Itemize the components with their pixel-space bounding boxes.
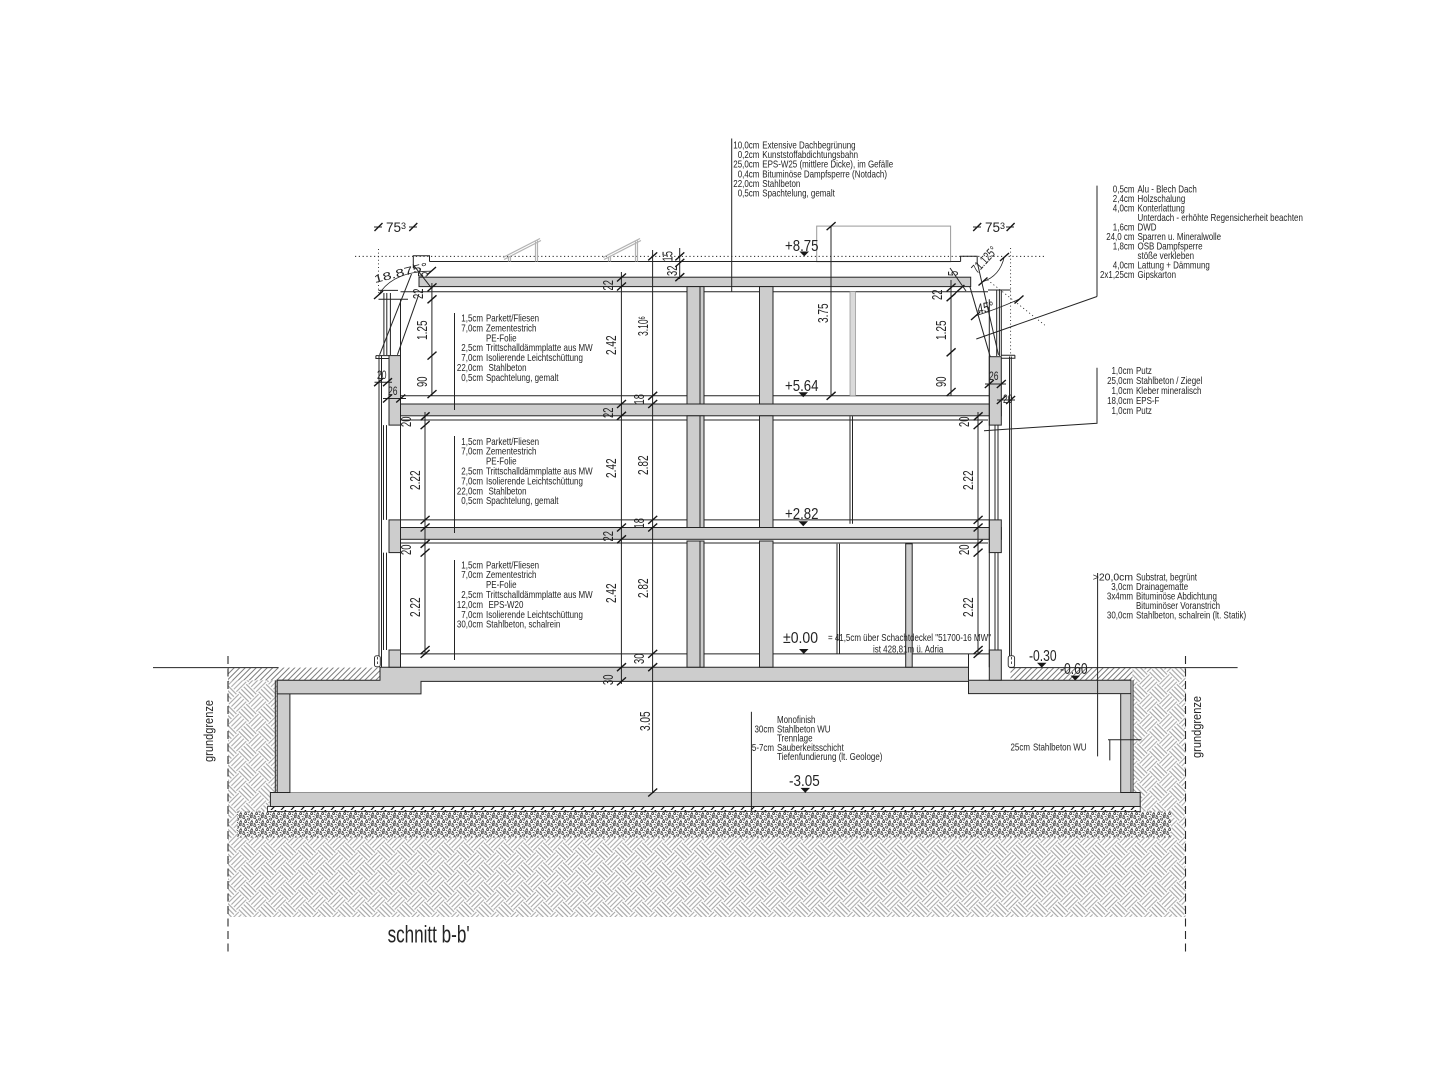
svg-text:22: 22 [411,289,427,299]
svg-text:2.42: 2.42 [604,583,620,603]
svg-text:3x4mm: 3x4mm [1107,592,1133,603]
svg-text:2.82: 2.82 [636,455,652,475]
svg-text:2.22: 2.22 [961,470,977,490]
svg-text:2.22: 2.22 [961,597,977,617]
svg-text:22: 22 [930,290,946,300]
svg-text:30: 30 [601,675,617,685]
svg-text:Putz: Putz [1136,406,1152,417]
svg-text:20: 20 [399,417,415,427]
svg-text:2.42: 2.42 [604,458,620,478]
svg-text:0,5cm: 0,5cm [738,189,760,200]
svg-text:5: 5 [416,272,432,277]
svg-text:+2.82: +2.82 [785,506,819,523]
svg-text:grundgrenze: grundgrenze [201,700,216,762]
svg-text:18: 18 [632,394,648,404]
svg-text:Spachtelung, gemalt: Spachtelung, gemalt [486,373,559,384]
svg-text:7,0cm: 7,0cm [461,570,483,581]
svg-text:Gipskarton: Gipskarton [1138,270,1177,281]
svg-text:Unterdach - erhöhte Regensiche: Unterdach - erhöhte Regensicherheit beac… [1138,213,1303,224]
svg-text:Stahlbeton, schalrein: Stahlbeton, schalrein [486,620,560,631]
svg-text:Stahlbeton WU: Stahlbeton WU [1033,743,1087,754]
svg-text:0,5cm: 0,5cm [461,373,483,384]
svg-text:26: 26 [989,371,999,383]
svg-text:2.82: 2.82 [636,578,652,598]
svg-text:2.22: 2.22 [408,597,424,617]
svg-text:1.25: 1.25 [415,320,431,340]
svg-text:20: 20 [1003,394,1013,406]
svg-text:1,8cm: 1,8cm [1113,242,1135,253]
svg-text:5-7cm: 5-7cm [752,743,774,754]
svg-text:4,0cm: 4,0cm [1113,204,1135,215]
svg-text:2x1,25cm: 2x1,25cm [1100,270,1135,281]
svg-text:20: 20 [377,370,387,382]
svg-text:Spachtelung, gemalt: Spachtelung, gemalt [762,189,835,200]
svg-text:3.75: 3.75 [816,303,832,323]
svg-text:= 41,5cm über Schachtdeckel "5: = 41,5cm über Schachtdeckel "51700-16 MW… [828,633,991,644]
svg-text:45°: 45° [976,299,996,318]
svg-text:22: 22 [601,531,617,541]
svg-text:7,0cm: 7,0cm [461,447,483,458]
svg-text:-0.30: -0.30 [1029,648,1057,665]
svg-text:18: 18 [632,518,648,528]
svg-text:Tiefenfundierung (lt. Geologe): Tiefenfundierung (lt. Geologe) [777,752,882,763]
svg-text:20: 20 [399,545,415,555]
svg-text:1.25: 1.25 [934,320,950,340]
svg-text:20: 20 [957,417,973,427]
svg-text:7,0cm: 7,0cm [461,323,483,334]
svg-text:15: 15 [661,251,677,261]
svg-text:26: 26 [388,386,398,398]
svg-text:30,0cm: 30,0cm [457,620,483,631]
svg-text:Stahlbeton, schalrein (lt. Sta: Stahlbeton, schalrein (lt. Statik) [1136,610,1246,621]
svg-text:2.22: 2.22 [408,470,424,490]
svg-text:grundgrenze: grundgrenze [1189,696,1204,758]
svg-text:30cm: 30cm [755,724,775,735]
svg-text:±0.00: ±0.00 [783,630,818,647]
svg-text:30,0cm: 30,0cm [1107,610,1133,621]
svg-text:22: 22 [601,408,617,418]
svg-text:32: 32 [665,266,681,276]
svg-text:3.05: 3.05 [638,711,654,731]
svg-text:-3.05: -3.05 [789,773,820,790]
svg-text:0,5cm: 0,5cm [461,496,483,507]
svg-text:20: 20 [957,545,973,555]
svg-text:90: 90 [934,377,950,387]
svg-text:25cm: 25cm [1011,743,1031,754]
svg-text:30: 30 [632,654,648,664]
svg-text:schnitt b-b': schnitt b-b' [388,922,470,949]
svg-text:-0.60: -0.60 [1060,661,1088,678]
svg-text:ist 428,81m ü. Adria: ist 428,81m ü. Adria [873,645,944,656]
svg-text:Spachtelung, gemalt: Spachtelung, gemalt [486,496,559,507]
svg-text:2.42: 2.42 [604,335,620,355]
svg-text:90: 90 [415,377,431,387]
svg-text:1,0cm: 1,0cm [1112,406,1134,417]
svg-text:22: 22 [601,280,617,290]
